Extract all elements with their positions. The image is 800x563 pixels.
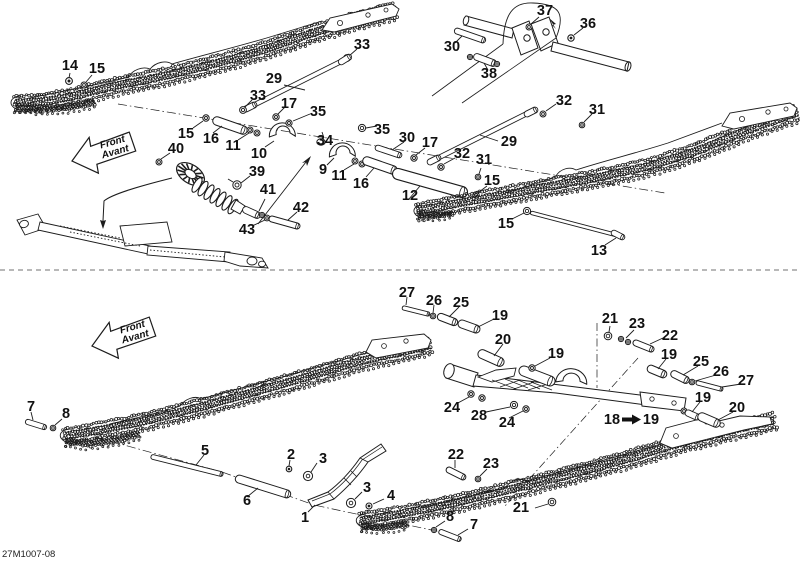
svg-text:7: 7 <box>470 517 478 533</box>
svg-text:29: 29 <box>501 134 517 150</box>
svg-text:8: 8 <box>62 406 70 422</box>
svg-text:31: 31 <box>589 102 605 118</box>
svg-text:19: 19 <box>695 390 711 406</box>
svg-text:31: 31 <box>476 152 492 168</box>
svg-text:36: 36 <box>580 16 596 32</box>
svg-text:24: 24 <box>444 400 460 416</box>
svg-text:39: 39 <box>249 164 265 180</box>
svg-text:8: 8 <box>446 509 454 525</box>
svg-text:12: 12 <box>402 188 418 204</box>
svg-text:19: 19 <box>643 412 659 428</box>
svg-text:21: 21 <box>513 500 529 516</box>
svg-text:4: 4 <box>387 488 395 504</box>
svg-text:41: 41 <box>260 182 276 198</box>
svg-text:7: 7 <box>27 399 35 415</box>
svg-text:5: 5 <box>201 443 209 459</box>
svg-text:35: 35 <box>310 104 326 120</box>
svg-text:10: 10 <box>251 146 267 162</box>
svg-text:35: 35 <box>374 122 390 138</box>
svg-text:17: 17 <box>281 96 297 112</box>
svg-text:14: 14 <box>62 58 78 74</box>
svg-text:30: 30 <box>444 39 460 55</box>
svg-text:26: 26 <box>713 364 729 380</box>
svg-text:15: 15 <box>498 216 514 232</box>
svg-text:42: 42 <box>293 200 309 216</box>
svg-text:24: 24 <box>499 415 515 431</box>
svg-text:15: 15 <box>484 173 500 189</box>
svg-text:28: 28 <box>471 408 487 424</box>
svg-text:32: 32 <box>454 146 470 162</box>
svg-text:15: 15 <box>89 61 105 77</box>
svg-text:16: 16 <box>203 131 219 147</box>
svg-text:22: 22 <box>448 447 464 463</box>
svg-text:33: 33 <box>250 88 266 104</box>
svg-text:23: 23 <box>483 456 499 472</box>
svg-text:16: 16 <box>353 176 369 192</box>
svg-text:38: 38 <box>481 66 497 82</box>
svg-text:17: 17 <box>422 135 438 151</box>
svg-text:37: 37 <box>537 3 553 19</box>
svg-text:9: 9 <box>319 162 327 178</box>
svg-text:20: 20 <box>729 400 745 416</box>
svg-text:40: 40 <box>168 141 184 157</box>
svg-text:32: 32 <box>556 93 572 109</box>
svg-text:23: 23 <box>629 316 645 332</box>
svg-text:19: 19 <box>661 347 677 363</box>
svg-text:22: 22 <box>662 328 678 344</box>
svg-text:13: 13 <box>591 243 607 259</box>
svg-text:27: 27 <box>738 373 754 389</box>
svg-text:26: 26 <box>426 293 442 309</box>
svg-text:19: 19 <box>548 346 564 362</box>
svg-text:34: 34 <box>317 133 333 149</box>
svg-text:2: 2 <box>287 447 295 463</box>
svg-text:29: 29 <box>266 71 282 87</box>
svg-text:11: 11 <box>331 168 346 184</box>
svg-text:11: 11 <box>225 138 240 154</box>
svg-text:21: 21 <box>602 311 618 327</box>
svg-text:19: 19 <box>492 308 508 324</box>
svg-text:15: 15 <box>178 126 194 142</box>
svg-text:6: 6 <box>243 493 251 509</box>
svg-text:33: 33 <box>354 37 370 53</box>
svg-text:25: 25 <box>693 354 709 370</box>
svg-text:43: 43 <box>239 222 255 238</box>
svg-text:27: 27 <box>399 285 415 301</box>
svg-text:3: 3 <box>363 480 371 496</box>
svg-text:30: 30 <box>399 130 415 146</box>
svg-text:25: 25 <box>453 295 469 311</box>
svg-text:18: 18 <box>604 412 620 428</box>
svg-text:1: 1 <box>301 510 309 526</box>
svg-text:20: 20 <box>495 332 511 348</box>
svg-text:3: 3 <box>319 451 327 467</box>
svg-text:27M1007-08: 27M1007-08 <box>2 549 55 558</box>
